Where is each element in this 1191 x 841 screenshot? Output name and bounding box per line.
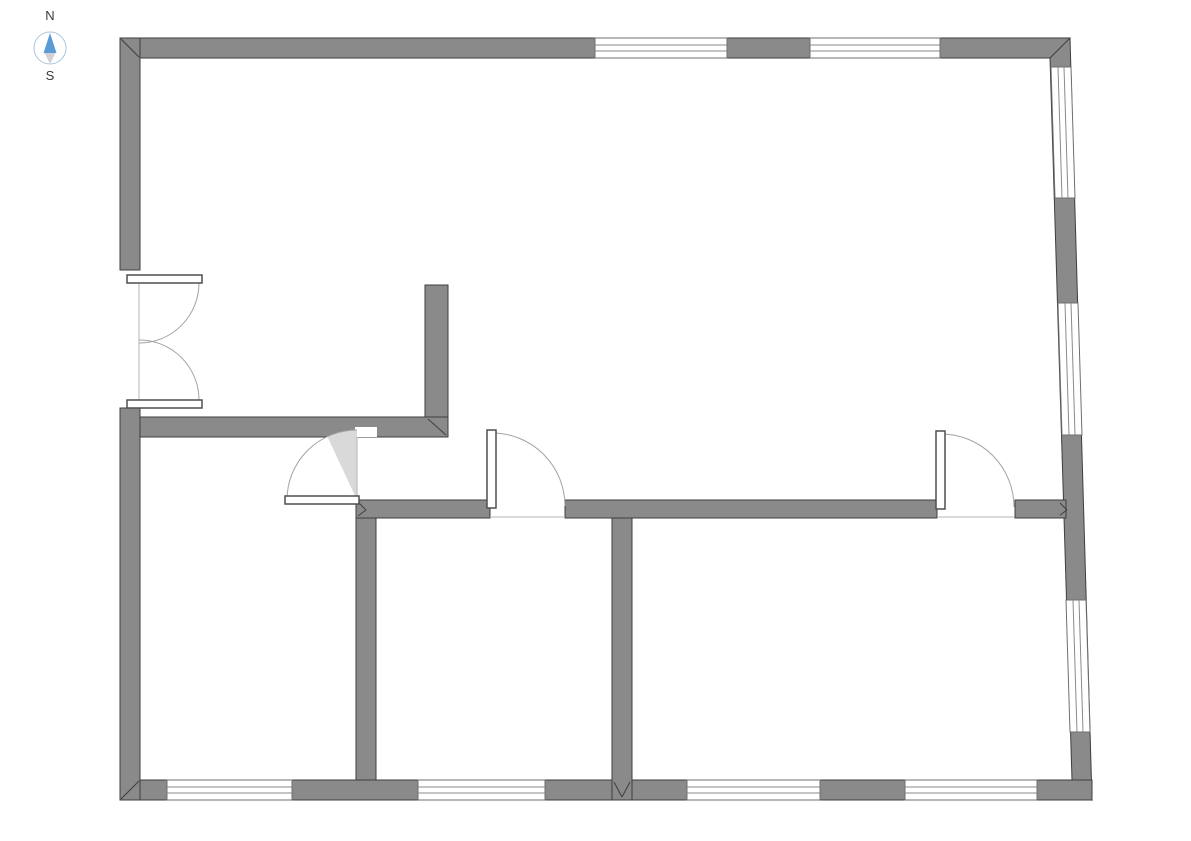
outer-wall-left-lower	[120, 408, 140, 800]
hall-wall-horizontal	[140, 417, 448, 437]
right-room-door	[936, 431, 1014, 517]
compass-south-label: S	[46, 68, 55, 83]
doors-layer	[127, 275, 1014, 517]
entry-double-door-leaf	[127, 400, 202, 408]
right-window-1	[1051, 67, 1075, 198]
middle-room-door-swing-area	[492, 433, 565, 506]
hallway-door	[285, 427, 377, 504]
floor-plan: N S	[0, 0, 1191, 841]
right-window-3	[1066, 600, 1090, 732]
hallway-door-jamb	[355, 427, 377, 437]
right-room-door-leaf	[936, 431, 945, 509]
top-window-1	[595, 38, 727, 58]
room-divider-west	[356, 518, 376, 780]
compass-needle-south-icon	[45, 53, 56, 64]
compass-rose: N S	[34, 8, 66, 83]
bottom-window-4	[905, 780, 1037, 800]
entry-double-door-swing-arc	[139, 283, 199, 343]
south-wall-center	[565, 500, 937, 518]
bottom-window-2	[418, 780, 545, 800]
south-wall-west	[356, 500, 490, 518]
bottom-window-3	[687, 780, 820, 800]
top-window-2	[810, 38, 940, 58]
walls-layer	[120, 38, 1092, 800]
entry-double-door	[127, 275, 202, 408]
right-window-2	[1058, 303, 1082, 435]
entry-double-door-swing-arc	[139, 340, 199, 400]
right-room-door-swing-area	[941, 434, 1014, 507]
outer-wall-left-upper	[120, 38, 140, 270]
compass-needle-north-icon	[44, 33, 57, 53]
compass-north-label: N	[45, 8, 54, 23]
middle-room-door-leaf	[487, 430, 496, 508]
floor-plan-viewer: N S	[0, 0, 1191, 841]
room-divider-center	[612, 518, 632, 800]
entry-double-door-leaf	[127, 275, 202, 283]
bottom-window-1	[167, 780, 292, 800]
middle-room-door	[487, 430, 565, 517]
south-wall-east	[1015, 500, 1066, 518]
hall-wall-vertical	[425, 285, 448, 417]
hallway-door-leaf	[285, 496, 359, 504]
